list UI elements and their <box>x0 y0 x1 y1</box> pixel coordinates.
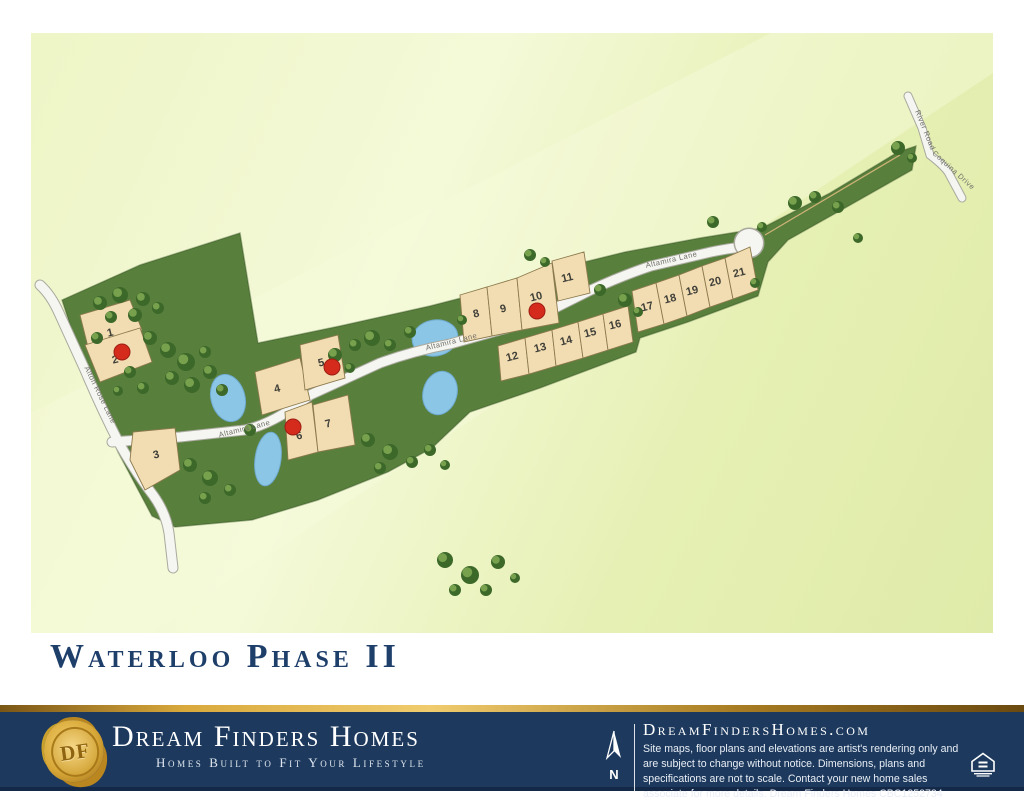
tree-highlight <box>200 493 207 500</box>
tree-highlight <box>525 250 532 257</box>
tree-highlight <box>619 294 627 302</box>
tree-highlight <box>892 142 900 150</box>
brand-tagline: Homes Built to Fit Your Lifestyle <box>156 755 426 771</box>
tree-highlight <box>362 434 370 442</box>
tree-highlight <box>908 154 914 160</box>
equal-housing-icon <box>970 752 996 778</box>
sold-dot-lot-5 <box>324 359 340 375</box>
brand-monogram: DF <box>59 737 92 766</box>
brand-seal-logo: DF <box>40 716 108 786</box>
tree-highlight <box>810 192 817 199</box>
brand-name: Dream Finders Homes <box>112 722 426 752</box>
tree-highlight <box>462 567 472 577</box>
tree-highlight <box>200 347 207 354</box>
tree-highlight <box>458 316 464 322</box>
gold-divider-bar <box>0 705 1024 712</box>
tree-highlight <box>185 378 194 387</box>
tree-highlight <box>113 288 122 297</box>
tree-highlight <box>94 297 102 305</box>
lot-polygon-7[interactable] <box>313 395 355 452</box>
footer-divider <box>634 724 635 798</box>
north-label: N <box>600 767 628 782</box>
tree-highlight <box>751 279 757 285</box>
footer: DF Dream Finders Homes Homes Built to Fi… <box>0 705 1024 791</box>
tree-highlight <box>350 340 357 347</box>
tree-highlight <box>634 308 640 314</box>
tree-highlight <box>178 354 188 364</box>
tree-highlight <box>137 293 145 301</box>
tree-highlight <box>106 312 113 319</box>
site-map-panel: 123456789101112131415161718192021Altamir… <box>31 33 993 633</box>
tree-highlight <box>346 364 352 370</box>
tree-highlight <box>166 372 174 380</box>
north-arrow-icon <box>604 730 624 760</box>
tree-highlight <box>161 343 170 352</box>
tree-highlight <box>541 258 547 264</box>
tree-highlight <box>375 463 382 470</box>
site-map: 123456789101112131415161718192021Altamir… <box>31 33 993 633</box>
tree-highlight <box>383 445 392 454</box>
tree-highlight <box>365 331 374 340</box>
tree-highlight <box>407 457 414 464</box>
tree-highlight <box>595 285 602 292</box>
tree-highlight <box>405 327 412 334</box>
tree-highlight <box>153 303 160 310</box>
sold-dot-lot-10 <box>529 303 545 319</box>
tree-highlight <box>492 556 500 564</box>
tree-highlight <box>789 197 797 205</box>
tree-highlight <box>129 309 137 317</box>
tree-highlight <box>114 387 120 393</box>
tree-highlight <box>92 333 99 340</box>
tree-highlight <box>144 332 152 340</box>
tree-highlight <box>438 553 447 562</box>
page-title: Waterloo Phase II <box>50 638 400 676</box>
tree-highlight <box>204 366 212 374</box>
tree-highlight <box>708 217 715 224</box>
tree-highlight <box>854 234 860 240</box>
tree-highlight <box>450 585 457 592</box>
tree-highlight <box>125 367 132 374</box>
tree-highlight <box>833 202 840 209</box>
tree-highlight <box>425 445 432 452</box>
tree-highlight <box>217 385 224 392</box>
website-url[interactable]: DreamFindersHomes.com <box>643 720 973 740</box>
tree-highlight <box>184 459 192 467</box>
tree-highlight <box>203 471 212 480</box>
sold-dot-lot-2 <box>114 344 130 360</box>
disclaimer-text: Site maps, floor plans and elevations ar… <box>643 742 973 802</box>
tree-highlight <box>511 574 517 580</box>
tree-highlight <box>481 585 488 592</box>
tree-highlight <box>225 485 232 492</box>
tree-highlight <box>758 223 764 229</box>
tree-highlight <box>138 383 145 390</box>
tree-highlight <box>329 349 337 357</box>
sold-dot-lot-6 <box>285 419 301 435</box>
tree-highlight <box>441 461 447 467</box>
tree-highlight <box>385 340 392 347</box>
